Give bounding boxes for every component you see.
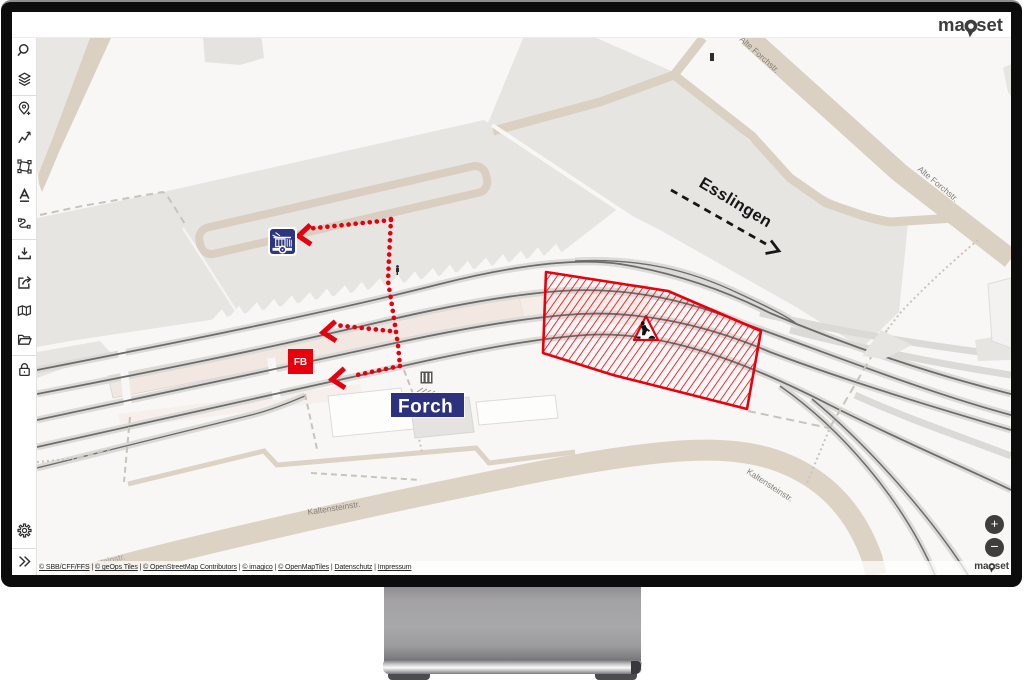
svg-text:FB: FB	[294, 357, 307, 368]
svg-text:ma: ma	[938, 14, 965, 35]
svg-text:set: set	[976, 14, 1003, 35]
svg-text:set: set	[995, 561, 1010, 572]
svg-text:Forch: Forch	[398, 397, 453, 418]
svg-text:ma: ma	[974, 561, 989, 572]
